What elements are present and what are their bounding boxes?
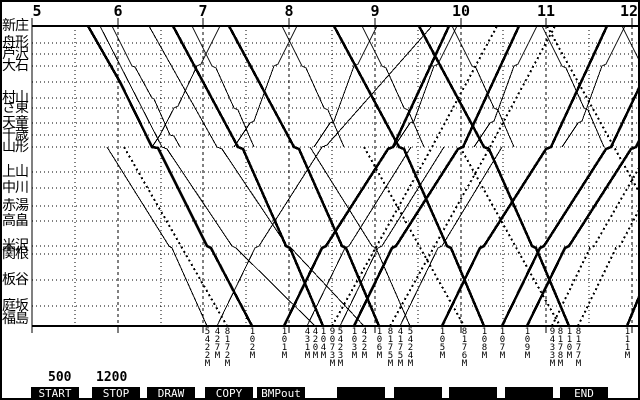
train-line [192,26,254,147]
fkey-bmpout-button[interactable]: BMPout [257,387,305,400]
train-number-label: 4 2 2 M [360,328,369,360]
train-number-label: 8 1 7 6 M [460,328,469,368]
hour-label: 7 [198,3,207,20]
train-number-label: 1 1 1 M [623,328,632,360]
param-value: 500 [48,371,71,385]
train-number-label: 1 0 4 M [319,328,328,360]
train-number-label: 8 1 7 5 M [386,328,395,368]
train-number-label: 1 1 0 M [565,328,574,360]
station-label: 上山 [2,164,34,180]
hour-label: 10 [452,3,470,20]
station-label: 関根 [2,246,34,262]
train-line-111M [627,297,639,326]
train-number-label: 1 0 5 M [438,328,447,360]
train-number-label: 1 0 1 M [280,328,289,360]
param-value: 1200 [96,371,127,385]
train-line [282,26,344,147]
fkey-blank-9-button[interactable] [505,387,553,400]
hour-label: 9 [370,3,379,20]
station-label: 大石 [2,58,34,74]
station-label: 高畠 [2,213,34,229]
train-number-label: 1 0 6 M [375,328,384,360]
train-number-label: 5 4 2 3 M [336,328,345,368]
train-number-label: 8 1 7 8 M [556,328,565,368]
train-number-label: 1 0 2 M [248,328,257,360]
train-number-label: 4 2 7 M [213,328,222,360]
fkey-stop-button[interactable]: STOP [92,387,140,400]
train-line [362,26,424,147]
train-line-8177M [578,210,639,326]
train-number-label: 1 0 9 M [523,328,532,360]
train-line [234,26,297,147]
train-number-label: 1 0 8 M [480,328,489,360]
train-number-label: 1 0 7 M [498,328,507,360]
train-line-8178M [460,147,560,326]
train-number-label: 5 4 2 2 M [203,328,212,368]
train-line [394,26,457,147]
train-line-101M [284,26,449,326]
train-line-420M [100,26,315,326]
train-line-102M [88,26,252,326]
fkey-blank-6-button[interactable] [337,387,385,400]
train-number-label: 1 0 3 M [350,328,359,360]
train-line-5422M [107,147,207,326]
train-number-label: 5 4 2 4 M [406,328,415,368]
train-number-label: 8 1 7 7 M [574,328,583,368]
fkey-copy-button[interactable]: COPY [205,387,253,400]
train-number-label: 8 1 7 2 M [223,328,232,368]
station-label: さ東 [2,100,34,116]
train-line-8172M [124,147,227,326]
station-label: 福島 [2,311,34,327]
train-line-431M [307,147,411,326]
station-label: 山形 [2,139,34,155]
hour-label: 8 [284,3,293,20]
train-line-104M [173,26,323,326]
hour-label: 12 [620,3,638,20]
train-line-109M [527,141,639,326]
hour-label: 11 [537,3,555,20]
train-diagram-app-screen: 56789101112 新庄舟形芦沢大石村山さ東天童千歳山形上山中川赤湯高畠米沢… [0,0,640,400]
fkey-draw-button[interactable]: DRAW [147,387,195,400]
fkey-blank-8-button[interactable] [449,387,497,400]
station-label: 板谷 [2,272,34,288]
fkey-end-button[interactable]: END [560,387,608,400]
train-line-5424M [310,147,410,326]
fkey-start-button[interactable]: START [31,387,79,400]
train-line [474,26,537,147]
train-number-label: 4 1 7 5 M [396,328,405,368]
train-line-5423M [340,147,444,326]
hour-label: 6 [113,3,122,20]
train-line [152,26,220,147]
train-line-103M [354,26,519,326]
station-label: 中川 [2,180,34,196]
fkey-blank-7-button[interactable] [394,387,442,400]
train-line-427M [217,26,432,326]
station-label: 新庄 [2,18,34,34]
station-label: 赤湯 [2,198,34,214]
train-line [562,26,625,147]
